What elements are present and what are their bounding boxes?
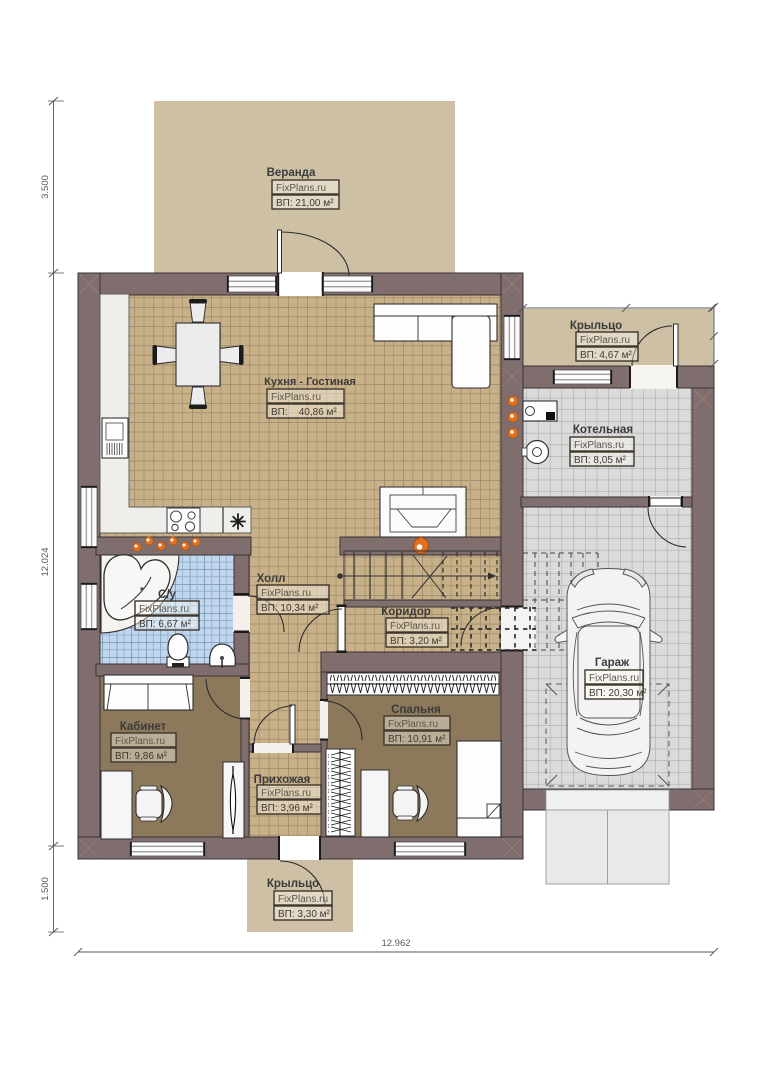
svg-text:12.962: 12.962 xyxy=(381,938,410,949)
svg-text:ВП: 20,30 м²: ВП: 20,30 м² xyxy=(589,688,647,699)
svg-text:1.500: 1.500 xyxy=(40,877,51,901)
svg-text:ВП: 8,05 м²: ВП: 8,05 м² xyxy=(574,455,627,466)
svg-text:Веранда: Веранда xyxy=(267,167,316,179)
svg-text:ВП: 4,67 м²: ВП: 4,67 м² xyxy=(580,350,633,361)
svg-text:Гараж: Гараж xyxy=(595,657,630,669)
svg-text:FixPlans.ru: FixPlans.ru xyxy=(139,604,189,615)
svg-text:FixPlans.ru: FixPlans.ru xyxy=(580,335,630,346)
svg-text:Котельная: Котельная xyxy=(573,424,633,436)
svg-text:FixPlans.ru: FixPlans.ru xyxy=(390,621,440,632)
svg-text:Холл: Холл xyxy=(257,573,286,585)
svg-text:Спальня: Спальня xyxy=(391,704,441,716)
svg-text:С/у: С/у xyxy=(158,589,177,601)
svg-text:ВП: 10,34 м²: ВП: 10,34 м² xyxy=(261,603,319,614)
svg-text:ВП: 9,86 м²: ВП: 9,86 м² xyxy=(115,751,168,762)
svg-text:FixPlans.ru: FixPlans.ru xyxy=(261,788,311,799)
svg-text:FixPlans.ru: FixPlans.ru xyxy=(388,719,438,730)
svg-text:ВП: 3,30 м²: ВП: 3,30 м² xyxy=(278,909,331,920)
svg-text:FixPlans.ru: FixPlans.ru xyxy=(276,183,326,194)
svg-text:Коридор: Коридор xyxy=(381,606,431,618)
svg-text:Крыльцо: Крыльцо xyxy=(570,320,622,332)
svg-text:Прихожая: Прихожая xyxy=(254,774,311,786)
svg-text:ВП: 6,67 м²: ВП: 6,67 м² xyxy=(139,619,192,630)
svg-text:ВП: 40,86 м²: ВП: 40,86 м² xyxy=(271,407,337,418)
svg-text:ВП: 3,20 м²: ВП: 3,20 м² xyxy=(390,636,443,647)
svg-text:3.500: 3.500 xyxy=(40,175,51,199)
svg-text:FixPlans.ru: FixPlans.ru xyxy=(278,894,328,905)
svg-text:FixPlans.ru: FixPlans.ru xyxy=(574,440,624,451)
svg-text:FixPlans.ru: FixPlans.ru xyxy=(271,392,321,403)
svg-text:FixPlans.ru: FixPlans.ru xyxy=(115,736,165,747)
svg-text:ВП: 3,96 м²: ВП: 3,96 м² xyxy=(261,803,314,814)
svg-text:ВП: 21,00 м²: ВП: 21,00 м² xyxy=(276,198,334,209)
svg-text:ВП: 10,91 м²: ВП: 10,91 м² xyxy=(388,734,446,745)
svg-text:Кухня - Гостиная: Кухня - Гостиная xyxy=(264,376,356,388)
svg-text:12.024: 12.024 xyxy=(40,547,51,576)
svg-text:Кабинет: Кабинет xyxy=(120,721,167,733)
svg-text:FixPlans.ru: FixPlans.ru xyxy=(261,588,311,599)
svg-text:Крыльцо: Крыльцо xyxy=(267,878,319,890)
svg-text:FixPlans.ru: FixPlans.ru xyxy=(589,673,639,684)
